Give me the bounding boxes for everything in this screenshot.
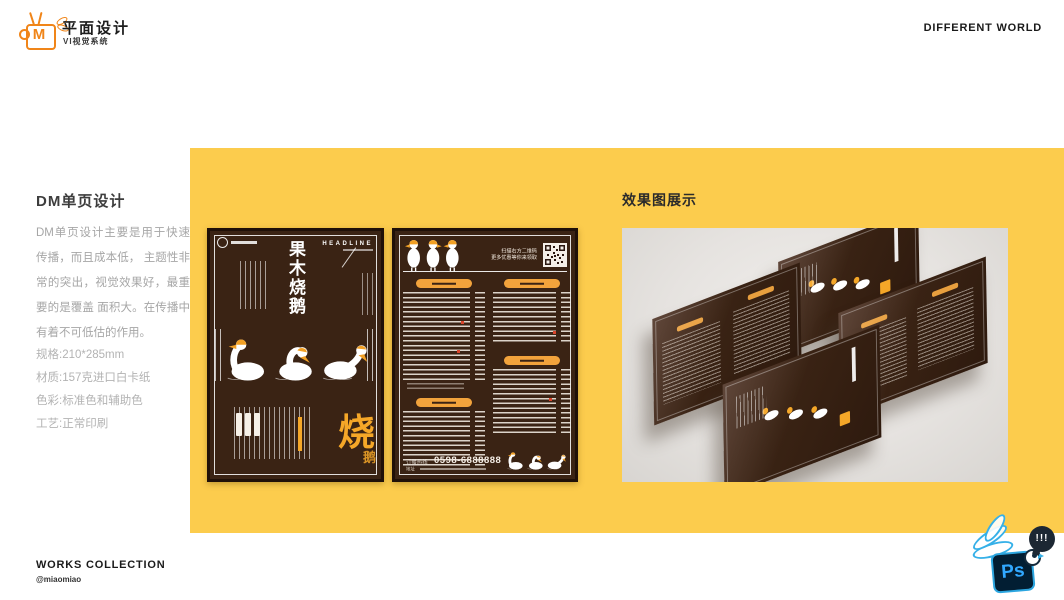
menu-note-texture	[407, 383, 464, 392]
address-line: 地址	[406, 465, 486, 473]
headline-text: HEADLINE	[322, 241, 373, 247]
mockup-photo	[622, 228, 1008, 482]
cover-paragraph-texture	[240, 261, 267, 309]
spec-craft: 工艺:正常印刷	[36, 413, 150, 436]
showcase-title: 效果图展示	[622, 190, 697, 210]
qr-note-line2: 更多优惠等你来领取	[491, 255, 537, 262]
header-title: 平面设计	[62, 17, 130, 38]
menu-section-pill	[416, 398, 472, 407]
spicy-mark	[457, 350, 460, 353]
spec-color: 色彩:标准色和辅助色	[36, 390, 150, 413]
spec-material: 材质:157克进口白卡纸	[36, 367, 150, 390]
menu-rows-texture	[403, 292, 485, 380]
qr-code	[543, 243, 567, 267]
footer-title: WORKS COLLECTION	[36, 559, 166, 571]
address-label: 地址	[406, 466, 415, 472]
small-char-e: 鹅	[363, 447, 376, 466]
menu-divider	[403, 271, 567, 272]
goose-swim-icon	[222, 335, 370, 385]
goose-stand-icon	[405, 237, 461, 273]
address-texture	[420, 468, 486, 470]
menu-section-pill	[504, 356, 560, 365]
tag-box	[245, 413, 251, 436]
spec-size: 规格:210*285mm	[36, 344, 150, 367]
qr-note: 扫描右方二维码 更多优惠等你来领取	[491, 248, 537, 262]
menu-rows-texture	[493, 369, 571, 435]
dm-flyer-menu: 扫描右方二维码 更多优惠等你来领取	[392, 228, 578, 482]
page-root: M 平面设计 VI视觉系统 DIFFERENT WORLD DM单页设计 DM单…	[0, 0, 1064, 600]
menu-column-left	[403, 279, 485, 467]
headline-subline	[343, 249, 373, 251]
section-description: DM单页设计主要是用于快速传播，而且成本低， 主题性非常的突出，视觉效果好，最重…	[36, 221, 190, 346]
menu-section-pill	[416, 279, 472, 288]
section-title: DM单页设计	[36, 190, 125, 211]
cover-slash-texture	[362, 273, 375, 315]
spicy-mark	[549, 398, 552, 401]
big-char-shao: 烧	[338, 414, 375, 451]
cover-title-vertical: 果木烧鹅	[287, 240, 304, 316]
tag-box	[254, 413, 260, 436]
menu-section-pill	[504, 279, 560, 288]
footer-handle: @miaomiao	[36, 575, 81, 584]
cover-headline: HEADLINE	[322, 241, 373, 251]
logo-letter: M	[26, 24, 52, 46]
qr-note-line1: 扫描右方二维码	[491, 248, 537, 255]
cover-brand-mark-icon	[217, 237, 257, 248]
header-right-text: DIFFERENT WORLD	[880, 22, 1042, 34]
menu-column-right	[493, 279, 571, 435]
header-subtitle: VI视觉系统	[63, 36, 109, 47]
spicy-mark	[553, 331, 556, 334]
speech-bubble: !!!	[1029, 526, 1055, 552]
brand-logo-icon: M	[22, 14, 62, 48]
spicy-mark	[461, 321, 464, 324]
tag-box	[236, 413, 242, 436]
orange-tag-bar	[298, 417, 302, 451]
menu-rows-texture	[493, 292, 571, 344]
dm-flyer-cover: HEADLINE 果木烧鹅 烧 鹅	[207, 228, 384, 482]
goose-swim-icon	[505, 448, 567, 474]
spec-list: 规格:210*285mm 材质:157克进口白卡纸 色彩:标准色和辅助色 工艺:…	[36, 344, 150, 436]
